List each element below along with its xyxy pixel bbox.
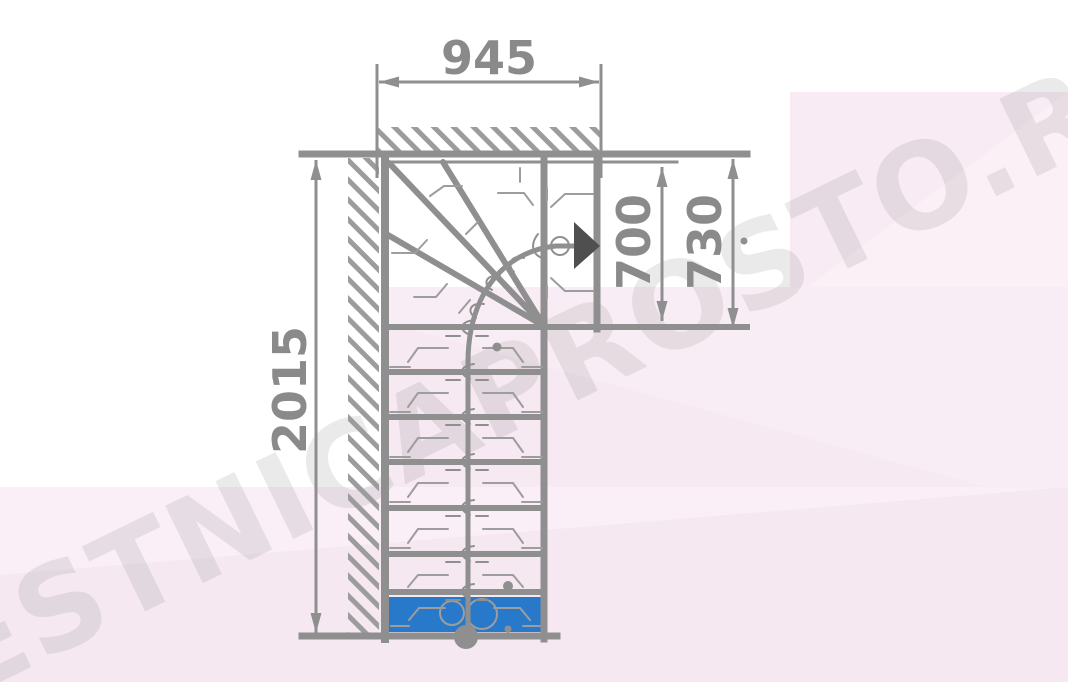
dimension-700-label: 700 xyxy=(607,194,661,290)
top-wall-hatch xyxy=(377,127,601,153)
dimension-2015-label: 2015 xyxy=(263,326,317,454)
walk-line-start-dot xyxy=(454,625,478,649)
stair-plan-canvas: LESTNICAPROSTO.RU xyxy=(0,0,1068,682)
plan-drawing-svg: 945 2015 700 730 xyxy=(0,0,1068,682)
winder-treads xyxy=(388,162,544,326)
left-wall-hatch xyxy=(348,158,379,636)
dimension-730-label: 730 xyxy=(678,194,732,290)
dimension-945-label: 945 xyxy=(441,31,537,85)
